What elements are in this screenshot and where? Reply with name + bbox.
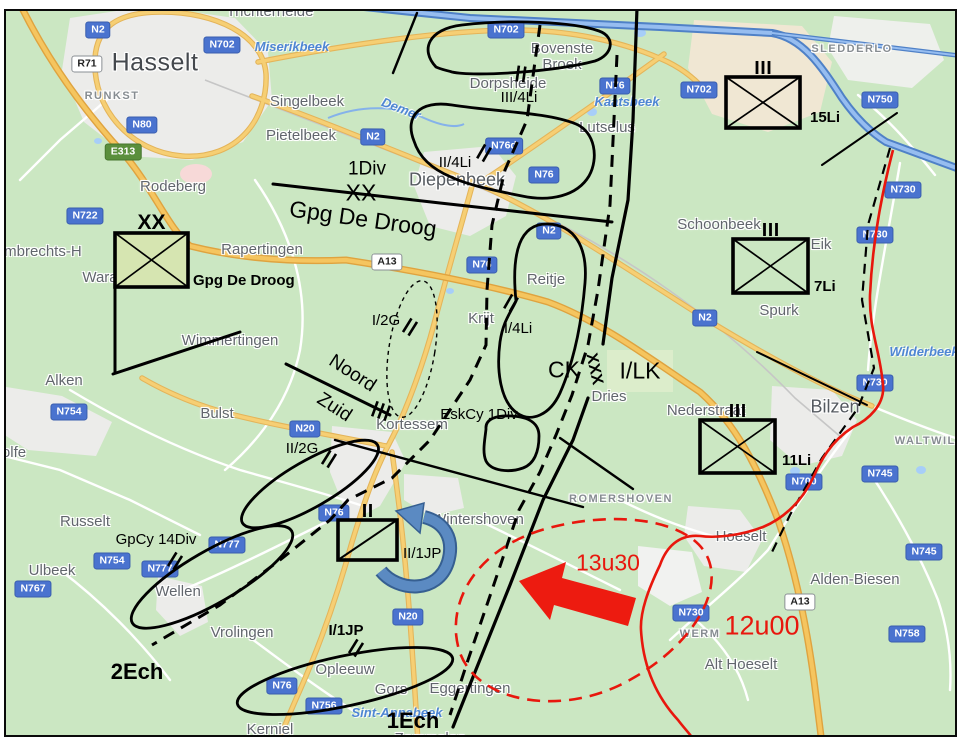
- military-label: Gpg De Droog: [288, 196, 438, 241]
- military-label: 12u00: [724, 611, 799, 640]
- unit-symbol-label: 7Li: [814, 279, 836, 295]
- military-label: II/2G: [286, 441, 319, 457]
- military-label: XX: [346, 181, 377, 206]
- military-label: 2Ech: [111, 660, 164, 684]
- military-label: I/4Li: [504, 321, 532, 337]
- military-label: I/LK: [620, 359, 661, 384]
- military-label: Noord: [325, 351, 380, 396]
- unit-symbol-label: 11Li: [782, 453, 811, 469]
- military-label: GpCy 14Div: [116, 532, 197, 548]
- military-label: III/4Li: [501, 90, 538, 106]
- military-label: CK: [548, 358, 580, 383]
- unit-symbol-label: 15Li: [810, 110, 840, 126]
- military-label: 13u30: [576, 551, 640, 576]
- military-label: I/1JP: [328, 623, 363, 639]
- tactical-map[interactable]: HasseltTrichterheideRUNKSTSingelbeekPiet…: [0, 0, 962, 744]
- military-label: 1Div: [348, 160, 386, 181]
- military-label: II/4Li: [439, 155, 472, 171]
- unit-symbol-label: Gpg De Droog: [193, 273, 295, 289]
- military-label: EskCy 1Div: [440, 407, 518, 423]
- military-label: 1Ech: [387, 709, 440, 733]
- military-label: XXX: [582, 352, 606, 387]
- unit-symbol-label: II/1JP: [403, 546, 441, 562]
- military-label: I/2G: [372, 313, 400, 329]
- military-label-layer: 1DivXXGpg De DroogIII/4LiII/4LiI/4LiI/2G…: [0, 0, 962, 744]
- military-label: Zuid: [313, 389, 355, 426]
